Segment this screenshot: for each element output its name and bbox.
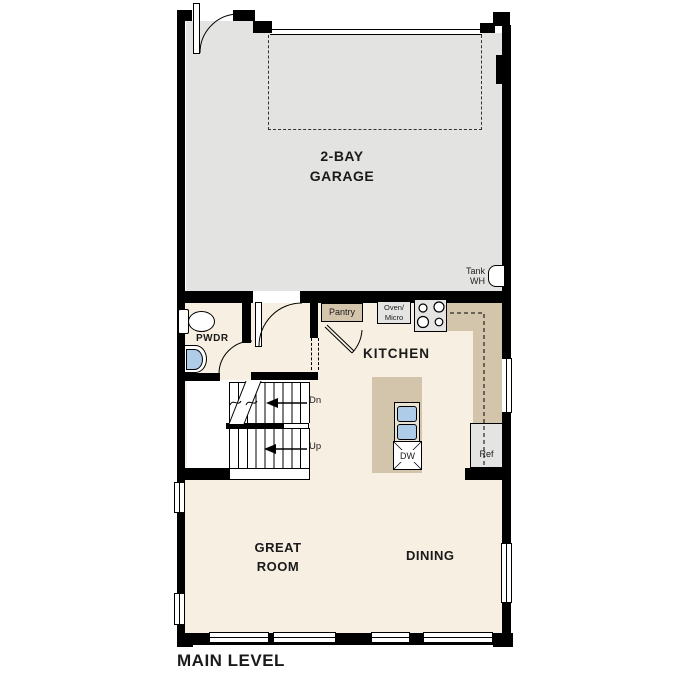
stair-bottom-landing xyxy=(229,468,310,480)
garage-entry-door-leaf xyxy=(255,302,262,347)
great-room-label-line2: ROOM xyxy=(230,557,326,576)
wall-bottom-right-corner xyxy=(493,633,513,647)
wall-top-b xyxy=(233,10,255,21)
pantry-cabinet: Pantry xyxy=(321,303,363,322)
dishwasher-label-overlay: DW xyxy=(397,450,418,462)
toilet-bowl xyxy=(188,311,215,332)
wall-top-a xyxy=(177,10,192,21)
water-heater xyxy=(488,265,505,287)
wall-top-step xyxy=(253,21,272,33)
powder-sink-bowl xyxy=(186,349,203,370)
garage-room-label: 2-BAY GARAGE xyxy=(287,146,397,186)
wall-stair-stub xyxy=(177,468,229,480)
garage-label-line1: 2-BAY xyxy=(287,146,397,166)
wall-powder-bottom xyxy=(177,373,220,381)
counter-side-run xyxy=(473,331,502,423)
island-sink-bowl-top xyxy=(397,406,417,422)
window-bottom-2 xyxy=(273,632,336,643)
kitchen-room-label: KITCHEN xyxy=(363,346,430,361)
dining-room-label: DINING xyxy=(406,548,455,563)
stair-down-label: Dn xyxy=(309,395,321,406)
great-room-label: GREAT ROOM xyxy=(230,538,326,576)
garage-label-line2: GARAGE xyxy=(287,166,397,186)
garage-bay-dashed-outline xyxy=(268,35,482,130)
stair-mid-landing xyxy=(283,423,309,429)
water-heater-label: Tank WH xyxy=(452,266,485,286)
window-left-1 xyxy=(174,482,185,513)
cooktop xyxy=(414,299,447,332)
window-bottom-1 xyxy=(209,632,269,643)
window-bottom-3 xyxy=(371,632,410,643)
wall-bottom-left-corner xyxy=(177,633,193,647)
stair-flight-down xyxy=(229,382,310,423)
powder-room-label: PWDR xyxy=(196,333,229,344)
stair-up-label: Up xyxy=(309,441,321,452)
island-sink-bowl-bottom xyxy=(397,424,417,440)
counter-top-run xyxy=(447,303,502,331)
wall-hall-kitchen xyxy=(310,303,318,338)
refrigerator-label: Ref xyxy=(479,449,493,459)
great-room-label-line1: GREAT xyxy=(230,538,326,557)
water-heater-label-line1: Tank xyxy=(452,266,485,276)
water-heater-label-line2: WH xyxy=(452,276,485,286)
garage-side-door-leaf xyxy=(193,3,200,54)
oven-micro-cabinet: Oven/ Micro xyxy=(377,301,411,324)
wall-garage-notch xyxy=(496,55,502,84)
floor-plan: Pantry Oven/ Micro Ref DW Tank WH 2-BAY … xyxy=(0,0,687,687)
plan-title: MAIN LEVEL xyxy=(177,651,285,671)
window-bottom-4 xyxy=(423,632,493,643)
wall-garage-house-left xyxy=(184,291,253,303)
window-left-2 xyxy=(174,593,185,625)
dishwasher-label-text: DW xyxy=(400,451,415,461)
refrigerator: Ref xyxy=(470,423,503,468)
oven-micro-label-line2: Micro xyxy=(378,313,410,323)
window-right-dining xyxy=(501,543,512,603)
wall-ref-stub xyxy=(465,468,503,480)
wall-hall-bottom xyxy=(251,372,318,380)
wall-powder-right xyxy=(242,303,251,343)
oven-micro-label-line1: Oven/ xyxy=(378,303,410,313)
stair-flight-up xyxy=(229,428,310,468)
pantry-label: Pantry xyxy=(329,307,355,317)
cased-opening-dashed xyxy=(311,338,319,370)
window-right-kitchen xyxy=(501,358,512,413)
wall-top-right-corner xyxy=(493,12,510,26)
